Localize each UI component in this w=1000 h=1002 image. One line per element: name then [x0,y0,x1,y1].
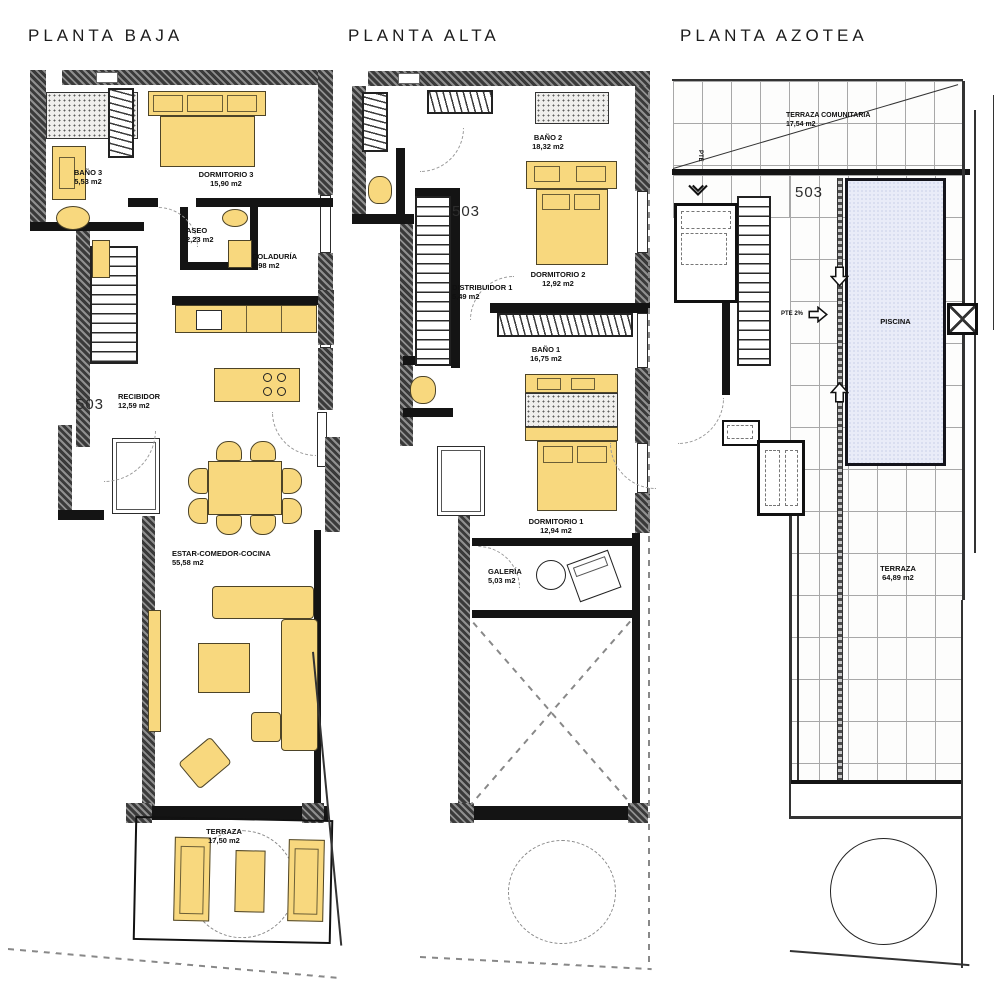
bed-headboard [526,161,617,189]
bed-headboard [148,91,266,116]
room-name: BAÑO 2 [516,133,580,142]
room-name: RECIBIDOR [118,392,168,401]
room-name: DISTRIBUIDOR 1 [452,283,512,292]
pillow [543,446,573,463]
kitchen-sink [196,310,222,330]
room-area: 18,32 m2 [516,142,580,151]
unit-number: 503 [76,396,104,413]
room-name: TERRAZA COMUNITARIA [786,112,870,121]
wall [352,214,414,224]
room-area: 55,58 m2 [172,558,272,567]
plot-dashed-line [420,956,652,970]
void-cross-line [473,622,634,806]
cushion [187,95,223,112]
room-area: 15,90 m2 [186,179,266,188]
wall [76,231,90,447]
room-area: 5,53 m2 [56,177,120,186]
storage-unit [681,233,727,265]
wall [318,348,333,410]
burner [277,387,286,396]
cushion [534,166,560,182]
bed [160,116,255,167]
room-label-aseo: ASEO 2,23 m2 [186,226,230,245]
wardrobe [497,313,633,337]
room-label-bano2: BAÑO 2 18,32 m2 [516,133,580,152]
lintel [96,72,118,83]
sofa [281,619,318,751]
bedspread [525,393,618,427]
arrow-up-icon [830,382,849,403]
pillow [542,194,570,210]
pool-machinery [757,440,805,516]
room-area: 2,23 m2 [186,235,230,244]
wall [472,610,640,618]
cabinet [92,240,110,278]
wall [458,516,470,808]
chair [188,498,208,524]
plot-dashed-line [648,92,650,964]
lintel [398,73,420,84]
wall [318,290,334,345]
lounger-pad [293,848,318,914]
wall [325,437,340,532]
wall [490,303,650,313]
kitchen-island [214,368,300,402]
chair [216,515,242,535]
room-area: 16,75 m2 [514,354,578,363]
lounger-pad [179,846,204,914]
window-leaf [441,450,481,512]
storage-unit [681,211,731,229]
burner [263,387,272,396]
chair [282,468,302,494]
room-label-distribuidor1: DISTRIBUIDOR 1 5,49 m2 [452,283,512,302]
staircase [415,196,451,366]
window [637,313,648,368]
burner [277,373,286,382]
room-name: COLADURÍA [252,252,316,261]
room-area: 64,89 m2 [866,573,930,582]
door-arc [272,412,316,456]
cushion [576,166,606,182]
machine-unit [765,450,780,506]
room-label-bano3: BAÑO 3 5,53 m2 [56,168,120,187]
sun-lounger [173,837,211,922]
room-label-dormitorio1: DORMITORIO 1 12,94 m2 [516,517,596,536]
floorplan-sheet: PLANTA BAJA PLANTA ALTA PLANTA AZOTEA [0,0,1000,1002]
bed-band [525,427,618,441]
wardrobe [362,92,388,152]
toilet [56,206,90,230]
arrow-right-icon [808,306,828,323]
room-label-terraza-azotea: TERRAZA 64,89 m2 [866,564,930,583]
room-label-galeria: GALERÍA 5,03 m2 [488,567,538,586]
circle-feature [830,838,937,945]
room-label-terraza-comunitaria: TERRAZA COMUNITARIA 17,54 m2 [786,112,870,130]
terrace-table [234,850,265,913]
door-arc [678,398,724,444]
room-name: TERRAZA [866,564,930,573]
plan-title-azotea: PLANTA AZOTEA [680,26,868,46]
chair [216,441,242,461]
cushion [153,95,183,112]
plot-line [962,81,965,600]
wall-line [797,516,799,782]
machine-unit [785,450,798,506]
window-bay [437,446,485,516]
toilet [368,176,392,204]
room-name: GALERÍA [488,567,538,576]
counter-divider [281,306,282,332]
plot-line [961,600,963,968]
chair [250,441,276,461]
wall-line [789,816,963,819]
plot-line [790,950,970,966]
wall-line [789,516,792,782]
room-label-piscina: PISCINA [880,317,910,326]
wall [722,303,730,395]
wall [318,70,333,195]
room-area: 5,49 m2 [452,292,512,301]
planter-box [722,420,760,446]
dashed-circle [508,840,616,944]
sink [222,209,248,227]
wall [30,70,46,228]
appliance-detail [573,556,608,577]
room-name: ASEO [186,226,230,235]
cushion [227,95,257,112]
wall [396,148,405,214]
window [637,191,648,253]
chair [188,468,208,494]
staircase [737,196,771,366]
room-name: DORMITORIO 1 [516,517,596,526]
washing-machine [536,560,566,590]
shaft-box [947,303,978,335]
room-name: TERRAZA [192,827,256,836]
wall [58,425,72,517]
dining-table [208,461,282,515]
room-name: DORMITORIO 3 [186,170,266,179]
wall [196,198,333,207]
room-name: DORMITORIO 2 [518,270,598,279]
plan-title-baja: PLANTA BAJA [28,26,183,46]
room-area: 17,54 m2 [786,121,870,130]
sun-lounger [287,839,325,922]
chair [282,498,302,524]
room-label-estar: ESTAR-COMEDOR-COCINA 55,58 m2 [172,549,272,568]
room-area: 12,94 m2 [516,526,596,535]
room-area: 6,98 m2 [252,261,316,270]
wardrobe [108,88,134,158]
room-label-terraza-baja: TERRAZA 17,50 m2 [192,827,256,846]
arrow-down-icon [830,266,849,287]
sofa [212,586,314,619]
door-arc [420,128,464,172]
sofa-chaise [251,712,281,742]
bed [537,441,617,511]
armchair [178,736,232,789]
unit-number: 503 [795,184,823,201]
slope-label-top: PTE [697,150,703,162]
cushion [571,378,595,390]
slope-label-right: PTE 2% [781,311,803,317]
wall [451,196,460,368]
room-area: 17,50 m2 [192,836,256,845]
kitchen-counter [175,305,317,333]
plan-title-alta: PLANTA ALTA [348,26,500,46]
wall [472,538,640,546]
appliance [566,550,621,603]
room-name: BAÑO 3 [56,168,120,177]
chevrons-down-icon [687,184,709,202]
burner [263,373,272,382]
pillow [574,194,600,210]
room-label-dormitorio2: DORMITORIO 2 12,92 m2 [518,270,598,289]
coffee-table [198,643,250,693]
room-label-dormitorio3: DORMITORIO 3 15,90 m2 [186,170,266,189]
planter-inner [727,425,753,439]
cushion [537,378,561,390]
wall [789,780,963,784]
bed [536,189,608,265]
room-name: ESTAR-COMEDOR-COCINA [172,549,272,558]
room-label-coladuria: COLADURÍA 6,98 m2 [252,252,316,271]
wall [403,408,453,417]
toilet [228,240,252,268]
wall [128,198,158,207]
bed-headboard [525,374,618,393]
wall [58,510,104,520]
wall-line [789,780,791,818]
toilet [410,376,436,404]
wall [415,188,460,196]
plot-dashed-line [8,948,337,978]
plot-line [993,95,994,330]
room-area: 5,03 m2 [488,576,538,585]
pool: PISCINA [845,178,946,466]
room-area: 12,59 m2 [118,401,168,410]
wall [632,533,640,808]
wall [172,296,318,305]
wall [452,806,648,820]
room-name: BAÑO 1 [514,345,578,354]
shower [535,92,609,124]
storeroom [674,203,738,303]
counter-divider [246,306,247,332]
room-label-bano1: BAÑO 1 16,75 m2 [514,345,578,364]
room-label-recibidor: RECIBIDOR 12,59 m2 [118,392,168,411]
wardrobe [427,90,493,114]
unit-number: 503 [452,203,480,220]
pillow [577,446,607,463]
pillar [450,803,474,823]
tv-cabinet [148,610,161,732]
room-area: 12,92 m2 [518,279,598,288]
chair [250,515,276,535]
